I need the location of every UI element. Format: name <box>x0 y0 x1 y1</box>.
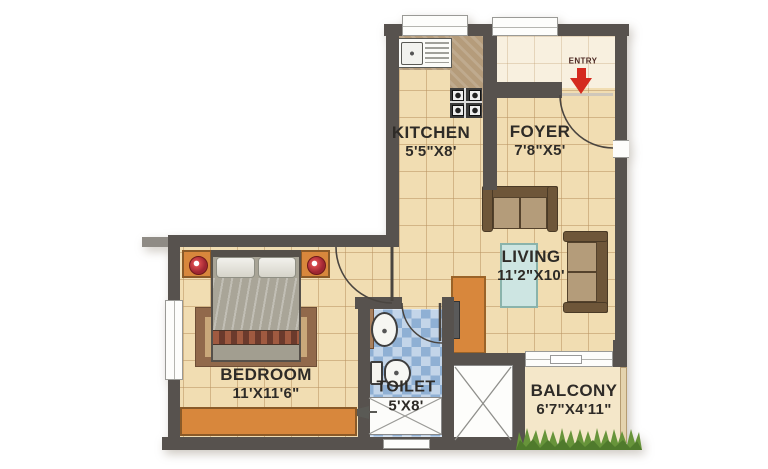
sink-bowl <box>401 42 423 65</box>
wall-bottom <box>162 437 525 450</box>
nightstand <box>300 250 330 278</box>
balcony-rail <box>620 367 627 443</box>
living-name: LIVING <box>497 246 565 267</box>
stove-burner <box>469 105 481 116</box>
stove-divider-v <box>464 88 466 118</box>
utility-shaft <box>453 365 513 442</box>
balcony-sliding-door <box>525 351 613 367</box>
landing-window <box>492 17 558 36</box>
entry-arrow-icon-head <box>570 78 592 94</box>
pillow <box>258 257 296 278</box>
wall-stub-left <box>142 237 168 247</box>
room-label-balcony: BALCONY 6'7"X4'11" <box>531 380 618 420</box>
room-label-foyer: FOYER 7'8"X5' <box>510 121 571 161</box>
sofa-cushion <box>567 272 597 302</box>
sofa-back <box>596 231 608 313</box>
pillow <box>216 257 255 278</box>
lamp-icon <box>189 256 208 275</box>
wall-balcony-pillar <box>613 340 627 367</box>
kitchen-name: KITCHEN <box>392 122 470 143</box>
wall-toilet-top <box>355 297 402 309</box>
nightstand <box>182 250 212 278</box>
sofa-arm <box>563 302 608 313</box>
tv-unit <box>451 276 486 354</box>
stove-burner <box>452 105 464 116</box>
sofa-cushion <box>567 242 597 272</box>
room-label-bedroom: BEDROOM 11'X11'6" <box>220 364 312 404</box>
balcony-dims: 6'7"X4'11" <box>531 401 618 420</box>
wall-shaft-right <box>513 353 525 450</box>
sofa-two-seater-right <box>563 231 608 313</box>
wall-right <box>615 36 627 355</box>
wardrobe <box>180 407 357 436</box>
room-label-living: LIVING 11'2"X10' <box>497 246 565 286</box>
bed-foot <box>213 345 299 360</box>
stove <box>450 88 482 118</box>
wall-bedroom-top <box>168 235 399 247</box>
wall-toilet-east <box>442 297 454 450</box>
sofa-arm <box>482 186 493 232</box>
toilet-dims: 5'X8' <box>377 398 436 417</box>
sink-drainboard <box>425 42 449 63</box>
entry-label: ENTRY <box>569 57 598 66</box>
sliding-door-panel <box>550 355 582 364</box>
bed-blanket <box>213 278 299 330</box>
toilet-vent <box>383 439 430 449</box>
living-dims: 11'2"X10' <box>497 267 565 286</box>
kitchen-dims: 5'5"X8' <box>392 143 470 162</box>
foyer-dims: 7'8"X5' <box>510 142 571 161</box>
bedroom-name: BEDROOM <box>220 364 312 385</box>
sofa-cushion <box>493 197 520 229</box>
wall-toilet-west <box>358 297 370 437</box>
floor-plan: ENTRY KITCHEN 5'5"X8' FOYER 7'8"X5' LIVI… <box>0 0 768 469</box>
washbasin <box>371 312 398 347</box>
stove-divider-h <box>450 101 482 103</box>
room-label-toilet: TOILET 5'X8' <box>377 378 436 417</box>
living-window-right <box>613 140 629 158</box>
foyer-name: FOYER <box>510 121 571 142</box>
bedroom-dims: 11'X11'6" <box>220 385 312 404</box>
bed-runner-band <box>213 330 299 345</box>
toilet-name: TOILET <box>377 378 436 398</box>
bed <box>211 250 301 362</box>
lamp-icon <box>307 256 326 275</box>
sofa-arm <box>563 231 608 242</box>
sofa-arm <box>547 186 558 232</box>
kitchen-sink <box>397 38 452 68</box>
sofa-cushion <box>520 197 547 229</box>
stove-burner <box>469 90 481 101</box>
kitchen-window <box>402 15 468 36</box>
wall-entry-stub <box>497 82 562 98</box>
room-label-kitchen: KITCHEN 5'5"X8' <box>392 122 470 162</box>
balcony-name: BALCONY <box>531 380 618 401</box>
stove-burner <box>452 90 464 101</box>
sofa-two-seater <box>482 186 558 232</box>
floor-plan-screenshot: ENTRY KITCHEN 5'5"X8' FOYER 7'8"X5' LIVI… <box>0 0 768 469</box>
wall-kitchen-right <box>483 36 497 190</box>
bedroom-window <box>165 300 183 380</box>
